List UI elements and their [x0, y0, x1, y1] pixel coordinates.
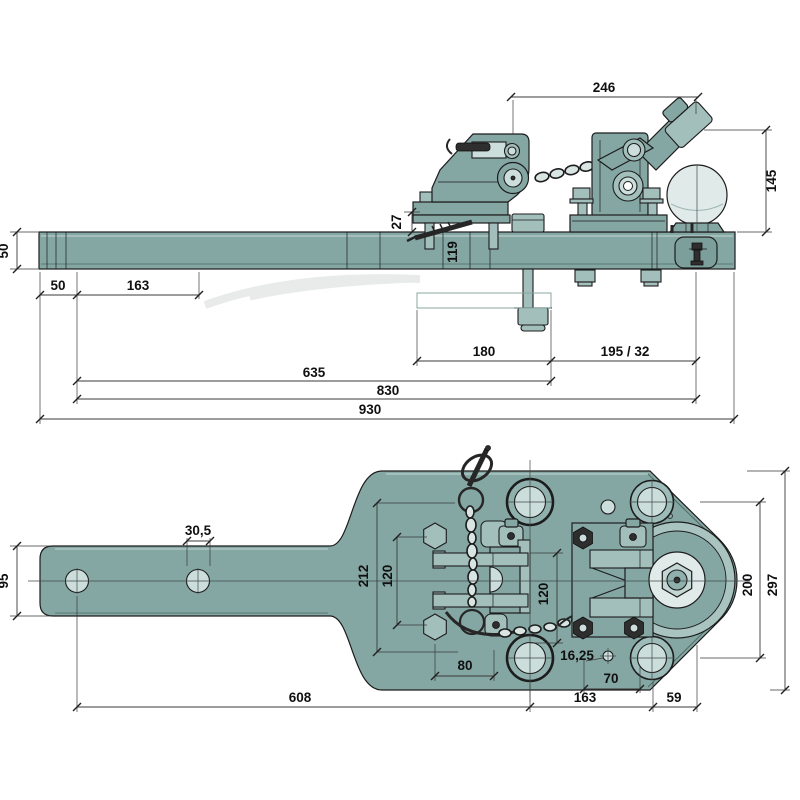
dim-120-mid: 120 [536, 583, 551, 606]
dim-297: 297 [765, 574, 780, 597]
dim-30-5: 30,5 [185, 523, 212, 538]
dim-635: 635 [303, 365, 326, 380]
dim-195-32: 195 / 32 [601, 344, 650, 359]
side-elevation-view: 246 145 27 119 50 50 163 180 195 / 32 63… [0, 80, 779, 424]
dim-120-left: 120 [380, 565, 395, 588]
linch-pin-side [456, 143, 490, 151]
dim-70: 70 [603, 671, 618, 686]
safety-chain-side [534, 160, 600, 183]
dim-80: 80 [457, 658, 472, 673]
technical-drawing-page: 246 145 27 119 50 50 163 180 195 / 32 63… [0, 0, 800, 800]
watermark-swoosh [205, 278, 420, 305]
dim-59: 59 [666, 690, 681, 705]
dim-163-plan: 163 [574, 690, 597, 705]
dim-163: 163 [127, 278, 150, 293]
dim-212: 212 [356, 565, 371, 588]
drawbar-beam-side [39, 232, 735, 269]
dim-830: 830 [377, 383, 400, 398]
dim-200: 200 [740, 574, 755, 597]
plan-view: 30,5 95 212 120 120 200 297 16,25 80 70 … [0, 446, 790, 713]
dim-119: 119 [445, 241, 460, 263]
dim-50: 50 [50, 278, 65, 293]
dim-608: 608 [289, 690, 312, 705]
dim-50-height: 50 [0, 243, 11, 258]
technical-drawing: 246 145 27 119 50 50 163 180 195 / 32 63… [0, 0, 800, 800]
dim-930: 930 [359, 402, 382, 417]
small-hole-top [601, 500, 615, 514]
dim-95: 95 [0, 573, 11, 589]
dim-180: 180 [473, 344, 496, 359]
dim-27: 27 [389, 214, 404, 229]
dim-145: 145 [764, 169, 779, 192]
dim-246: 246 [593, 80, 616, 95]
tow-ball-side [667, 165, 727, 232]
dim-16-25: 16,25 [560, 648, 594, 663]
